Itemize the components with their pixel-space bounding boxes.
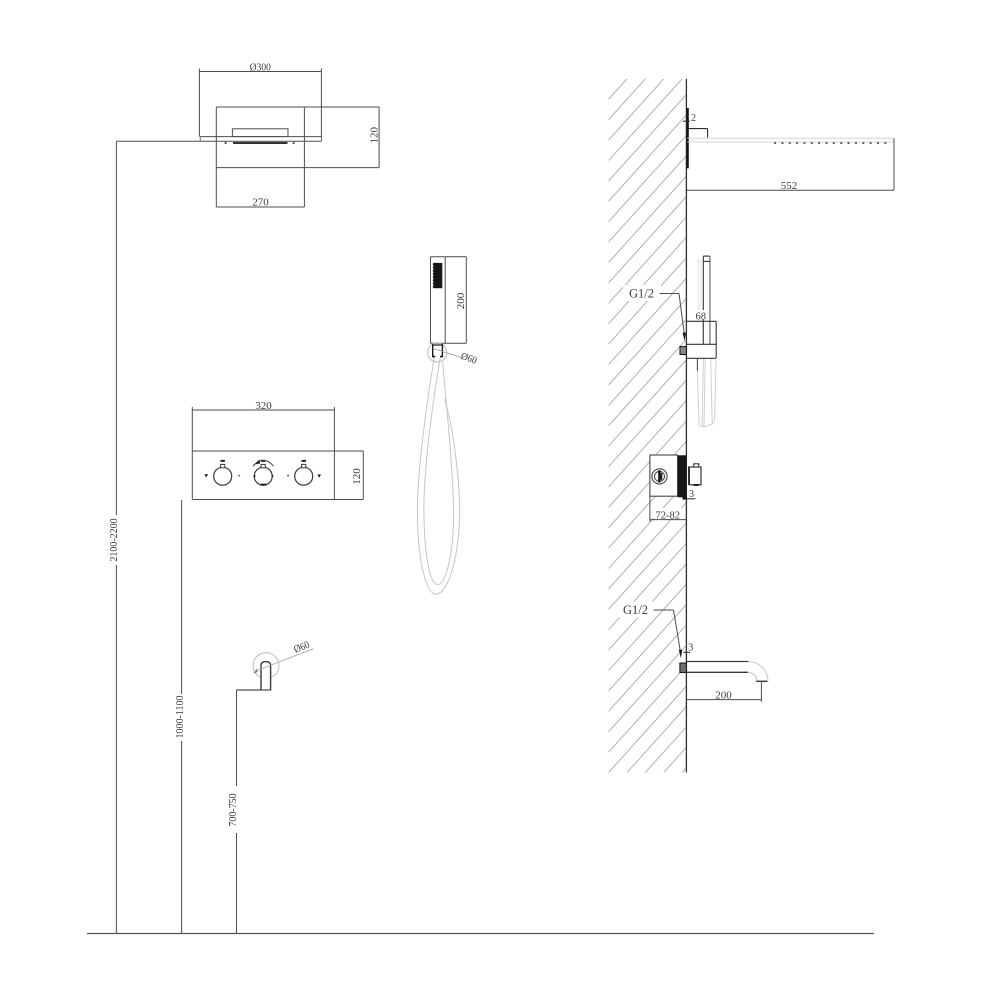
svg-text:120: 120 (369, 127, 381, 144)
svg-text:320: 320 (255, 400, 272, 412)
svg-text:200: 200 (715, 689, 732, 701)
svg-text:2: 2 (691, 113, 696, 124)
svg-text:3: 3 (688, 642, 693, 653)
svg-text:200: 200 (455, 292, 467, 309)
svg-text:68: 68 (696, 311, 707, 322)
svg-text:270: 270 (252, 197, 269, 209)
svg-text:120: 120 (351, 468, 363, 485)
svg-text:G1/2: G1/2 (623, 602, 648, 617)
svg-text:Ø300: Ø300 (250, 61, 271, 73)
svg-text:G1/2: G1/2 (629, 285, 654, 300)
svg-text:1000-1100: 1000-1100 (175, 696, 186, 739)
svg-text:2100-2200: 2100-2200 (109, 518, 120, 561)
svg-text:700-750: 700-750 (228, 793, 239, 826)
svg-text:552: 552 (781, 180, 798, 192)
